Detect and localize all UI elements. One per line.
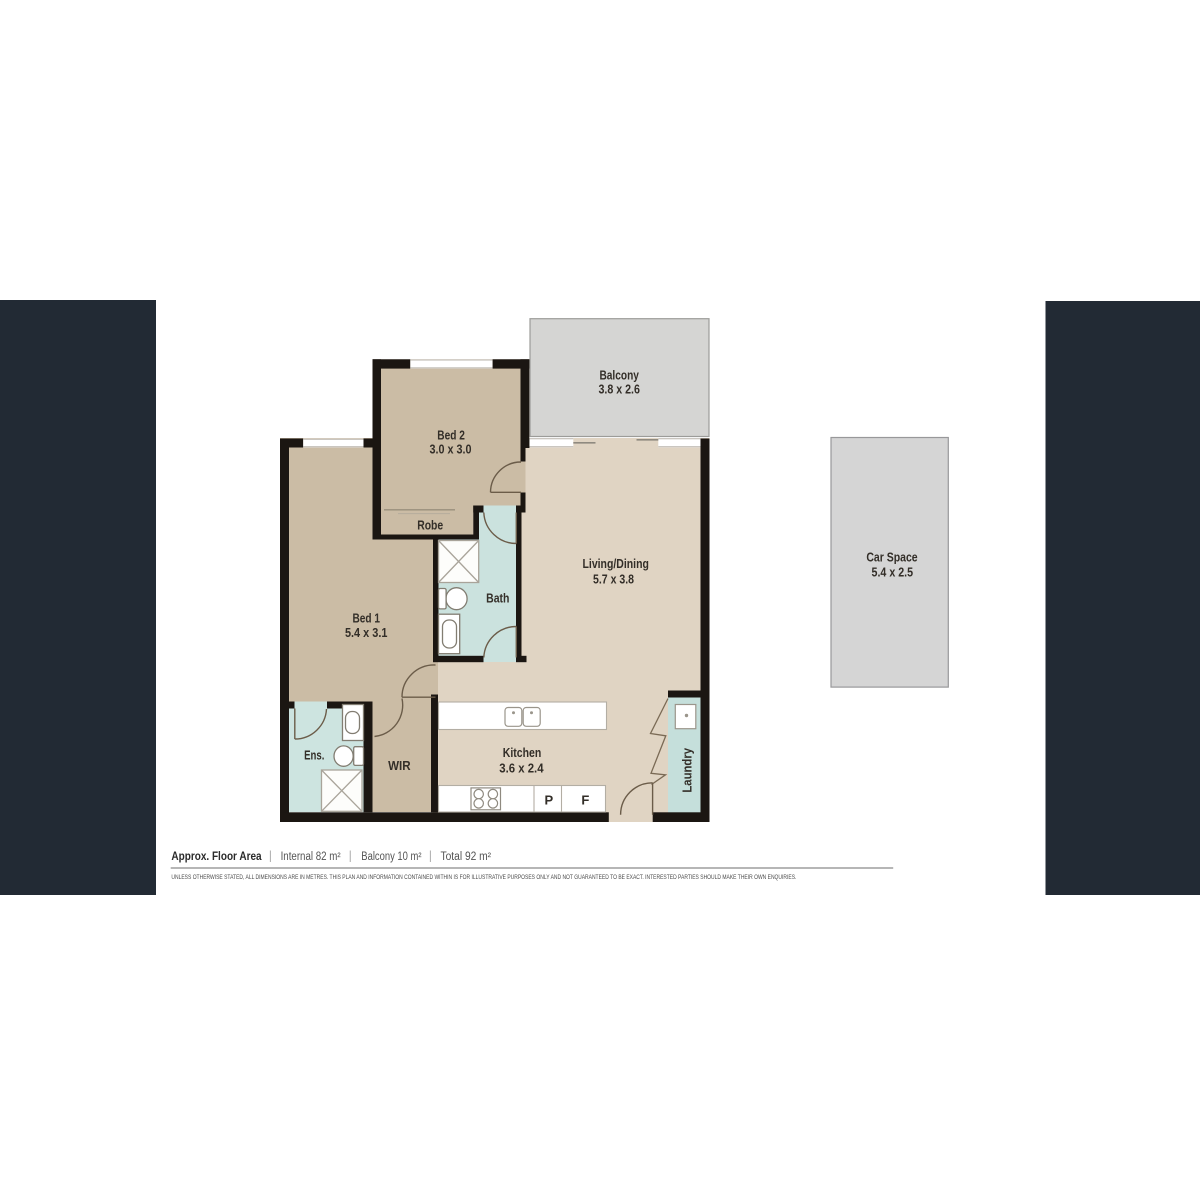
svg-text:Bed 1: Bed 1 (352, 611, 380, 626)
svg-text:5.4 x 3.1: 5.4 x 3.1 (345, 626, 388, 640)
svg-text:Bath: Bath (486, 590, 509, 605)
svg-text:3.0 x 3.0: 3.0 x 3.0 (430, 443, 472, 457)
svg-text:Car Space: Car Space (866, 551, 917, 565)
svg-text:Internal 82 m²: Internal 82 m² (281, 851, 341, 863)
svg-text:Total 92 m²: Total 92 m² (441, 851, 492, 863)
svg-text:Ens.: Ens. (304, 748, 324, 763)
svg-text:Bed 2: Bed 2 (437, 427, 465, 442)
svg-text:P: P (544, 792, 553, 807)
svg-text:Laundry: Laundry (681, 748, 695, 793)
svg-text:Balcony: Balcony (599, 368, 639, 383)
svg-text:Approx. Floor Area: Approx. Floor Area (171, 849, 261, 863)
svg-text:Balcony 10 m²: Balcony 10 m² (361, 851, 421, 863)
svg-text:Kitchen: Kitchen (503, 745, 542, 760)
svg-text:Robe: Robe (417, 517, 443, 532)
svg-text:|: | (429, 851, 432, 863)
svg-text:3.8 x 2.6: 3.8 x 2.6 (598, 383, 640, 397)
svg-text:5.7 x 3.8: 5.7 x 3.8 (593, 573, 634, 587)
svg-text:WIR: WIR (388, 758, 411, 773)
svg-text:Living/Dining: Living/Dining (583, 556, 649, 571)
svg-text:3.6 x 2.4: 3.6 x 2.4 (499, 761, 543, 775)
svg-text:5.4 x 2.5: 5.4 x 2.5 (872, 565, 914, 579)
svg-text:|: | (269, 851, 272, 863)
svg-text:F: F (581, 792, 589, 807)
svg-text:|: | (349, 851, 352, 863)
svg-text:UNLESS OTHERWISE STATED, ALL D: UNLESS OTHERWISE STATED, ALL DIMENSIONS … (171, 874, 796, 881)
